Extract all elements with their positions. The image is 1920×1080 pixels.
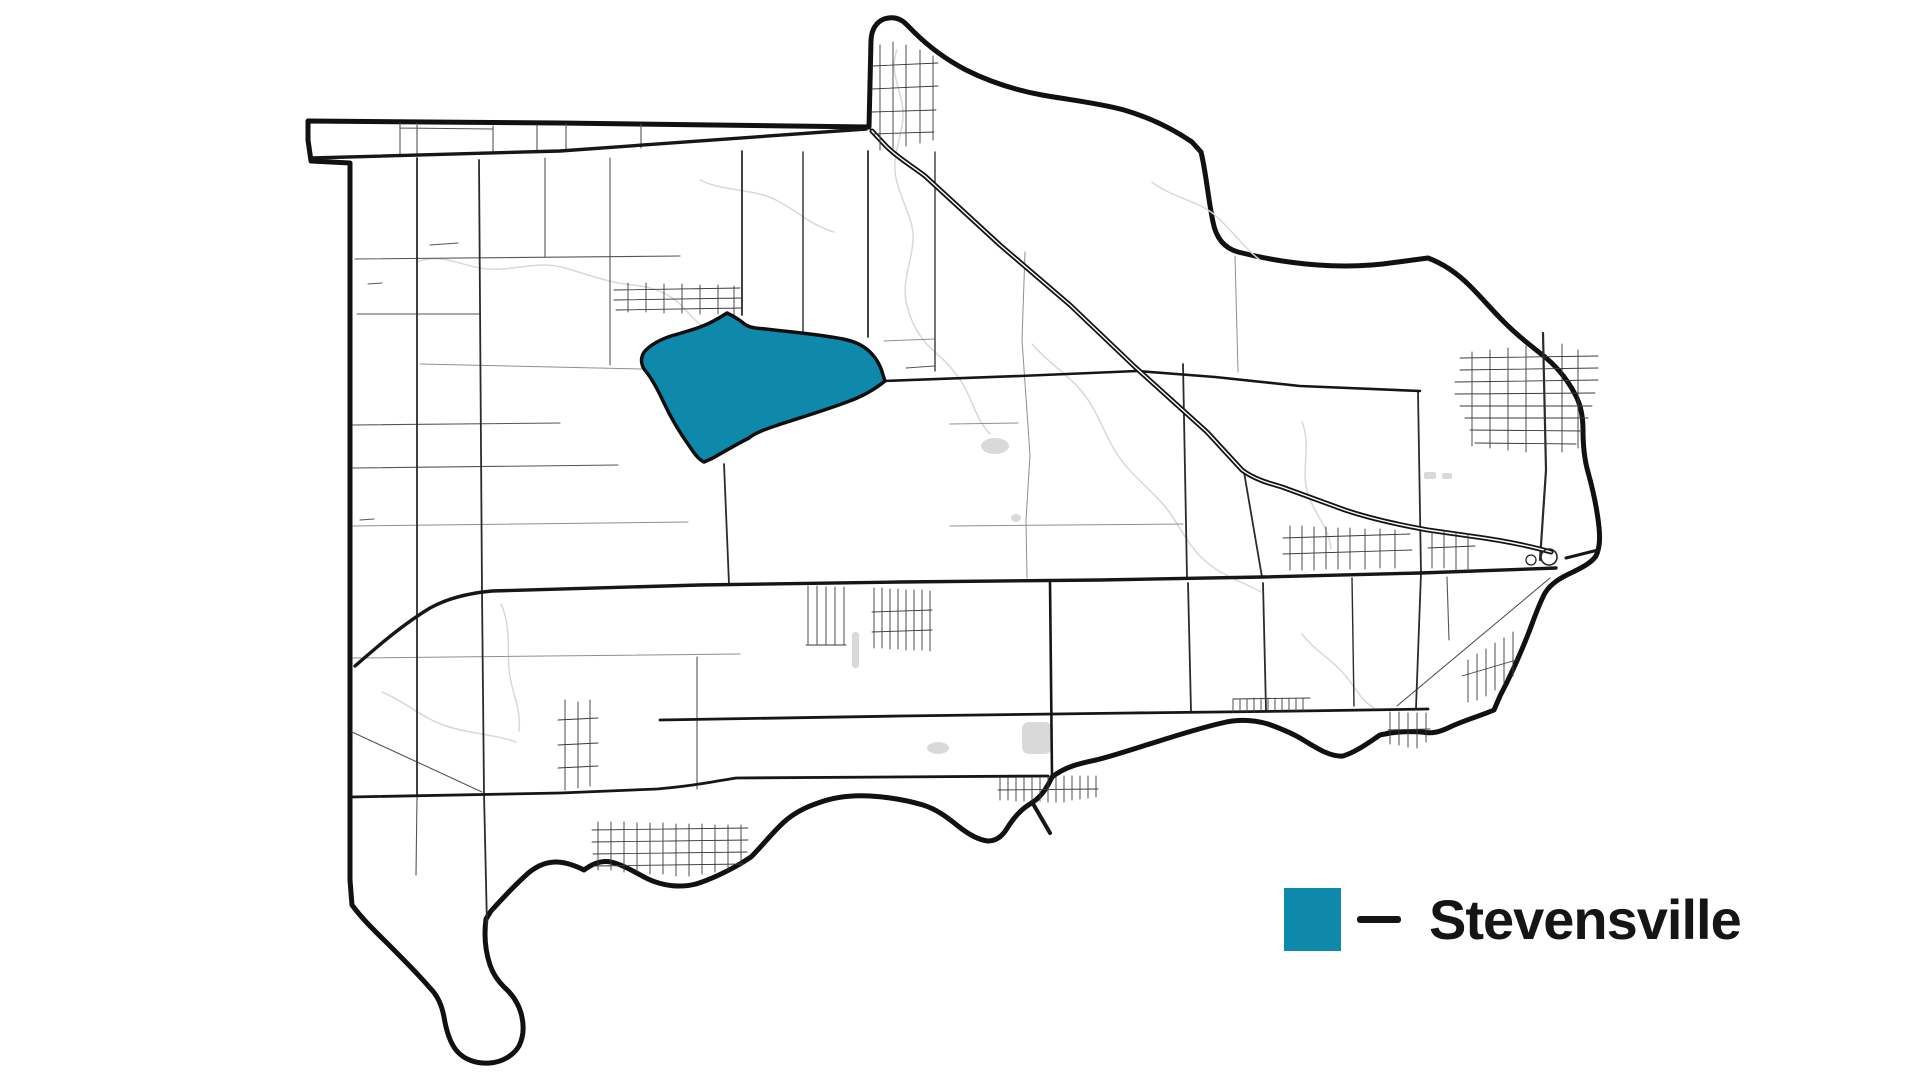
pond [1022, 722, 1052, 754]
pond [927, 742, 949, 754]
legend-label: Stevensville [1429, 892, 1741, 948]
legend-swatch-rect [1284, 888, 1341, 951]
pond [1424, 472, 1436, 479]
pond [1442, 473, 1452, 479]
pond [852, 632, 859, 668]
legend-dash-icon [1357, 916, 1401, 923]
pier [1032, 802, 1050, 833]
legend-swatch-icon [1284, 888, 1341, 951]
pond [981, 438, 1009, 454]
map-canvas: Stevensville [0, 0, 1920, 1080]
legend: Stevensville [1284, 888, 1741, 951]
pond [1011, 514, 1021, 522]
